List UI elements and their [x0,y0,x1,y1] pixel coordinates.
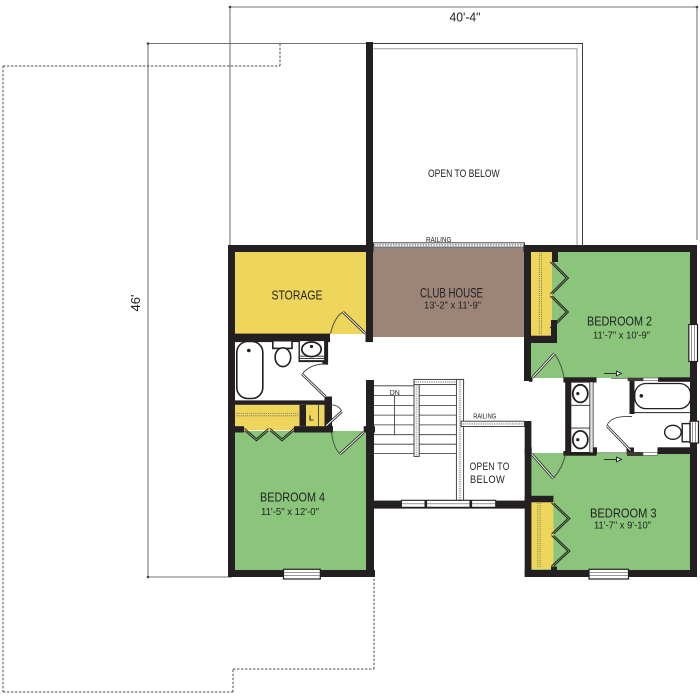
svg-text:BEDROOM 2: BEDROOM 2 [587,314,652,329]
svg-text:STORAGE: STORAGE [272,287,323,302]
svg-text:40'-4": 40'-4" [450,10,481,25]
svg-text:DN: DN [390,388,400,397]
svg-text:OPEN TO: OPEN TO [470,461,510,473]
svg-text:RAILING: RAILING [426,235,452,244]
svg-text:CLUB HOUSE: CLUB HOUSE [420,285,483,300]
svg-text:L: L [309,413,314,422]
svg-text:BELOW: BELOW [470,474,505,486]
svg-text:11'-7" x 9'-10": 11'-7" x 9'-10" [594,521,651,532]
svg-text:11'-7" x 10'-9": 11'-7" x 10'-9" [593,331,650,342]
svg-text:BEDROOM 4: BEDROOM 4 [260,490,325,505]
svg-text:OPEN TO BELOW: OPEN TO BELOW [428,168,500,180]
svg-text:13'-2" x 11'-9": 13'-2" x 11'-9" [424,301,481,312]
svg-text:RAILING: RAILING [473,412,496,421]
svg-text:46': 46' [128,295,143,312]
svg-text:11'-5" x 12'-0": 11'-5" x 12'-0" [261,507,319,518]
svg-text:BEDROOM 3: BEDROOM 3 [590,506,657,521]
